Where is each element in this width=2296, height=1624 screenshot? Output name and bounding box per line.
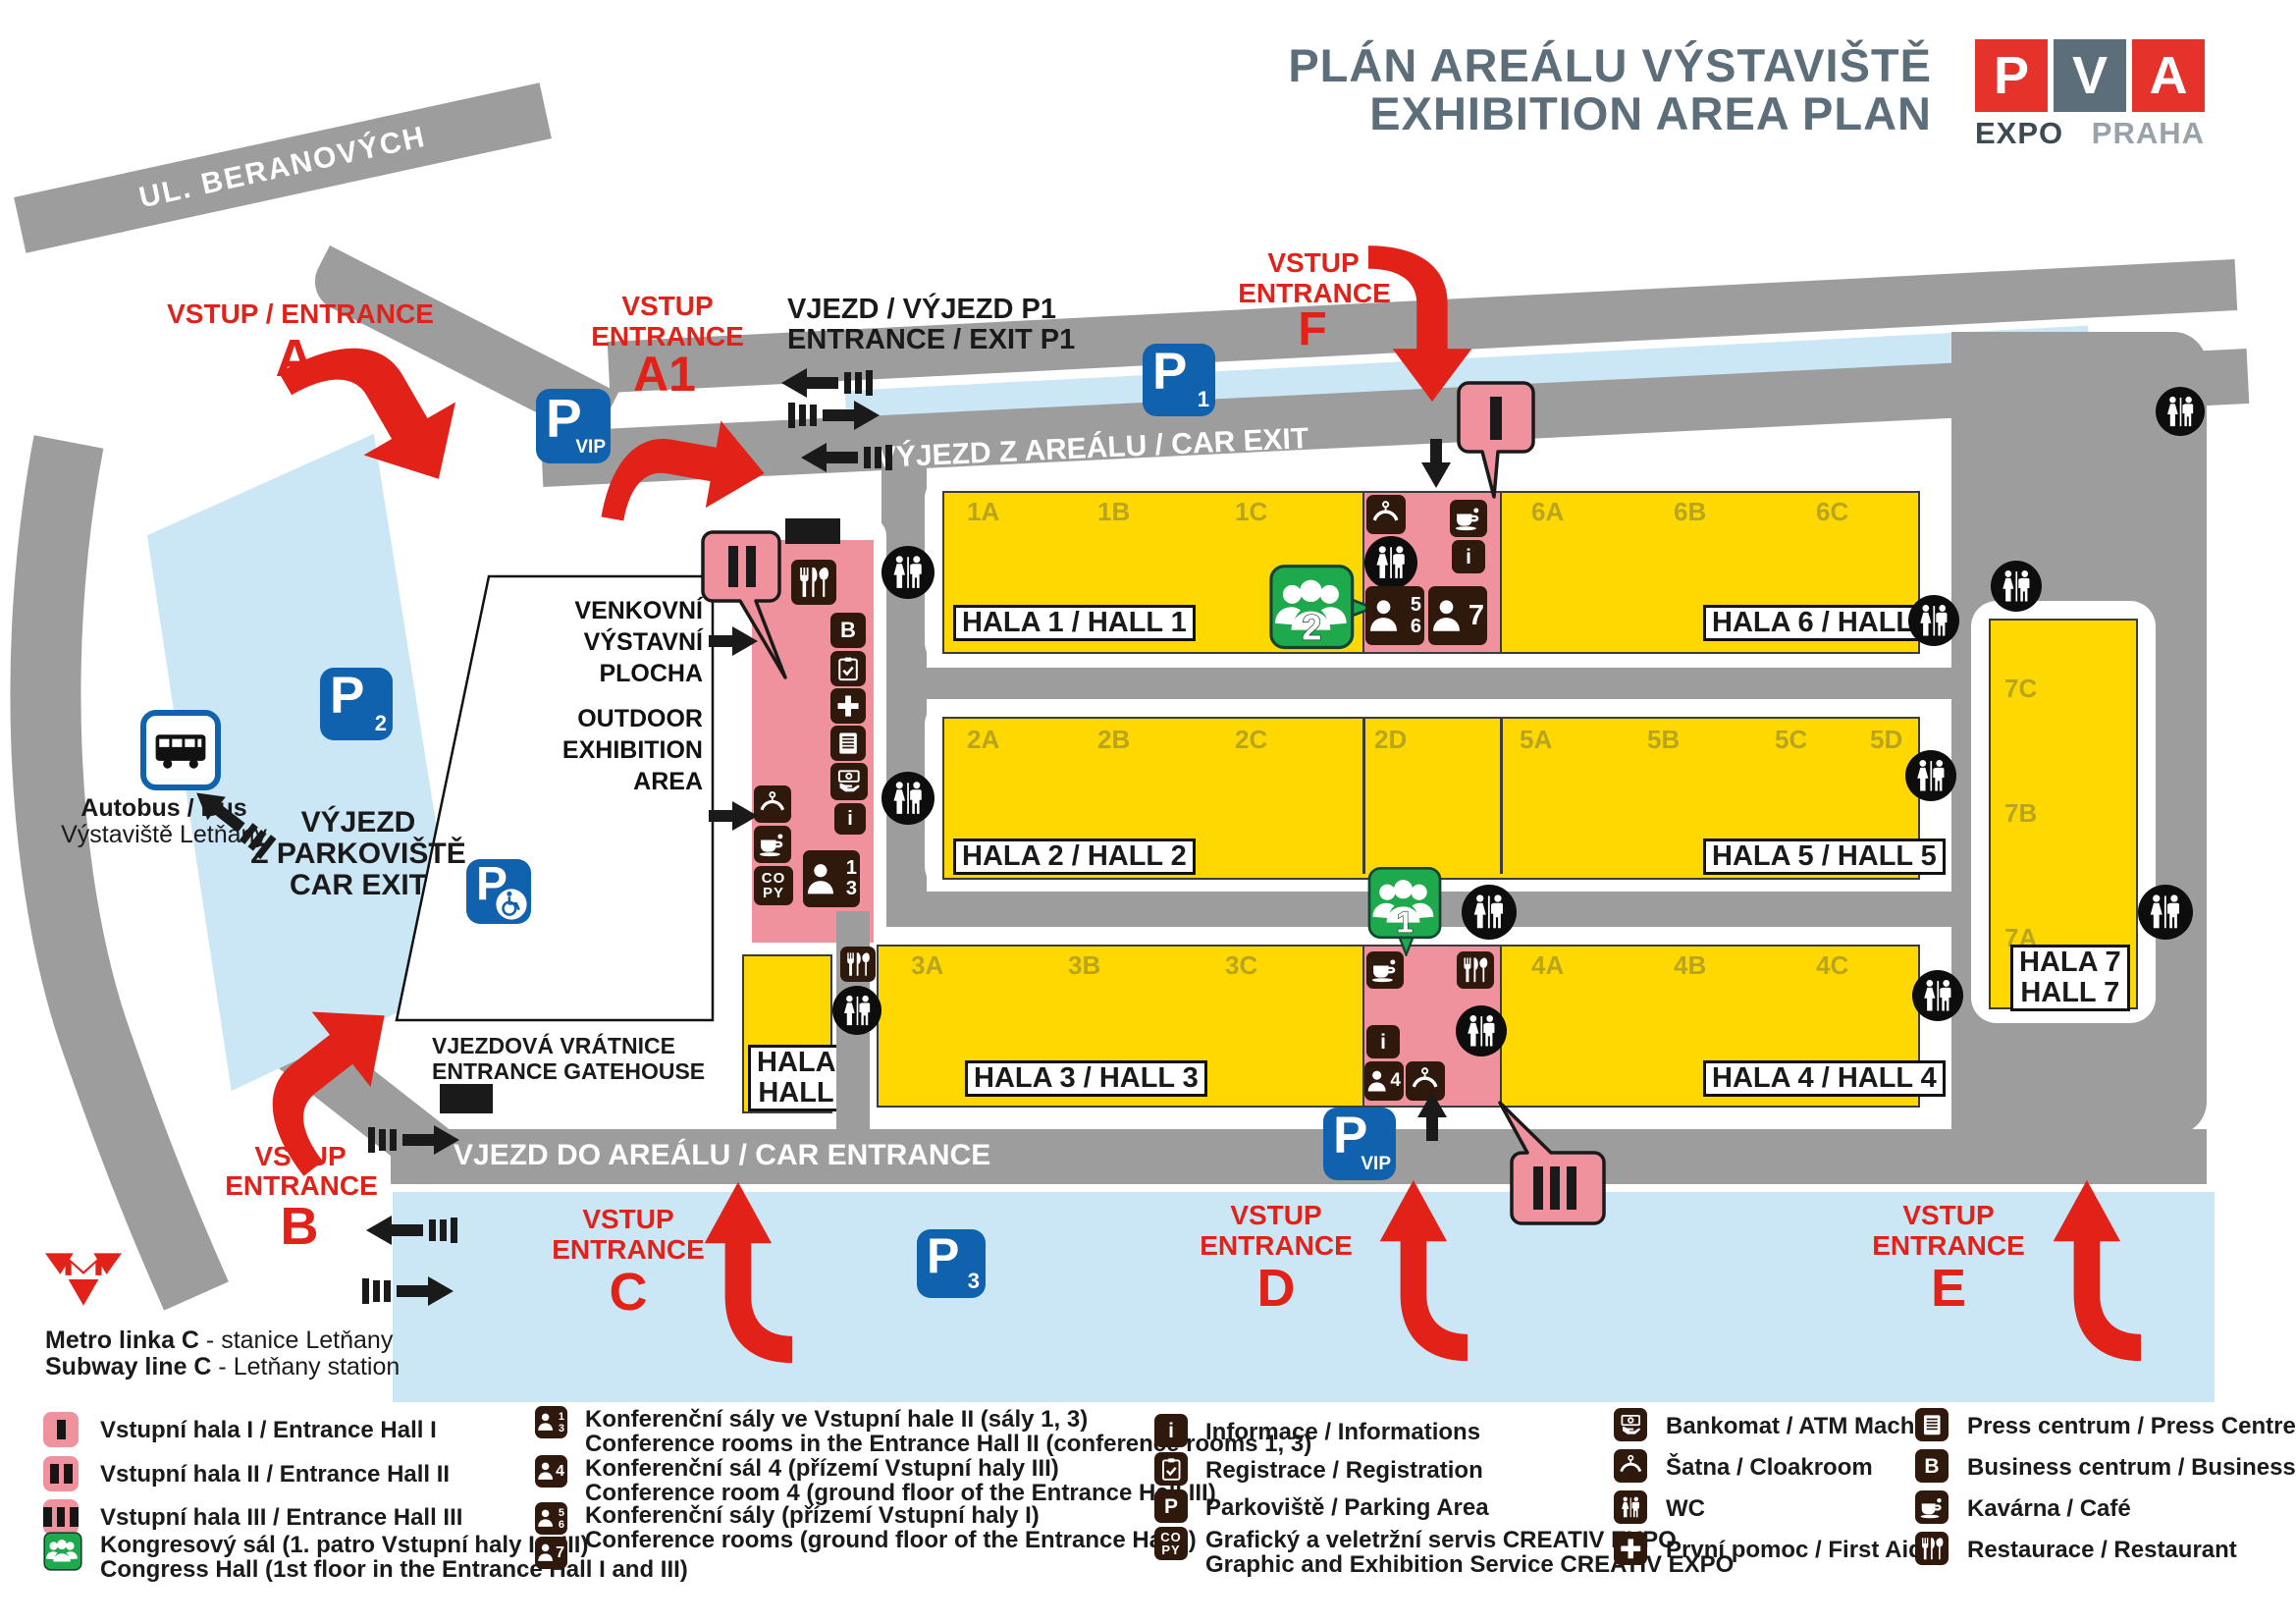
hall-section-label-1a: 1A bbox=[967, 497, 999, 527]
restaurant-icon bbox=[840, 947, 876, 982]
conf-icon: 7 bbox=[1428, 586, 1487, 645]
conf-icon: 4 bbox=[535, 1455, 567, 1488]
hall-7-label: HALA 7HALL 7 bbox=[2010, 945, 2130, 1011]
hall-section-label-1b: 1B bbox=[1097, 497, 1130, 527]
legend-label: Bankomat / ATM Machine bbox=[1666, 1414, 1949, 1438]
bus-icon bbox=[152, 722, 209, 779]
hall-section-label-4a: 4A bbox=[1531, 950, 1564, 981]
hall-section-label-7b: 7B bbox=[2004, 798, 2037, 829]
hall-section-label-4c: 4C bbox=[1816, 950, 1848, 981]
entrance-e-letter: E bbox=[1931, 1258, 1966, 1319]
legend-label: Informace / Informations bbox=[1205, 1420, 1480, 1444]
copy-icon: COPY bbox=[754, 866, 793, 905]
metro-icon bbox=[45, 1247, 122, 1310]
street-beranovych: UL. BERANOVÝCH bbox=[14, 82, 552, 252]
cafe-icon bbox=[1366, 951, 1404, 989]
parking-icon: P bbox=[1154, 1489, 1188, 1523]
direction-arrow-left bbox=[366, 1214, 460, 1247]
legend-label: Registrace / Registration bbox=[1205, 1458, 1483, 1483]
direction-arrow-right bbox=[365, 1123, 459, 1157]
copy-icon: COPY bbox=[1154, 1527, 1188, 1560]
entrance-e-l1: VSTUP bbox=[1902, 1200, 1994, 1231]
p1-gate-label: VJEZD / VÝJEZD P1 ENTRANCE / EXIT P1 bbox=[787, 295, 1075, 355]
firstaid-icon bbox=[830, 688, 866, 724]
entrance-b-letter: B bbox=[281, 1196, 319, 1257]
entrance-f-l1: VSTUP bbox=[1267, 247, 1359, 279]
wc-icon bbox=[881, 772, 934, 825]
hall-section-label-6b: 6B bbox=[1674, 497, 1706, 527]
street-beranovych-label: UL. BERANOVÝCH bbox=[136, 121, 429, 216]
direction-arrow-left bbox=[801, 441, 895, 474]
direction-arrow-right bbox=[359, 1274, 454, 1308]
wc-icon bbox=[1456, 1005, 1507, 1056]
restaurant-icon bbox=[1457, 951, 1494, 989]
info-icon: i bbox=[1366, 1025, 1400, 1058]
entrance-f-arrow bbox=[1368, 242, 1478, 406]
inner-vertical-road-upper bbox=[881, 444, 927, 923]
wc-icon bbox=[1991, 561, 2042, 612]
wc-icon bbox=[1462, 885, 1517, 940]
gatehouse-mark bbox=[440, 1084, 493, 1113]
atm-icon bbox=[1614, 1408, 1647, 1441]
legend-entrance-hall-chip bbox=[43, 1412, 79, 1447]
entrance-c-l1: VSTUP bbox=[582, 1204, 673, 1235]
hall2-5-divider bbox=[1500, 719, 1503, 874]
hall-section-label-2b: 2B bbox=[1097, 725, 1130, 755]
wc-icon bbox=[2138, 885, 2193, 940]
entrance-a1-letter: A1 bbox=[633, 346, 696, 403]
hall-section-label-3a: 3A bbox=[911, 950, 943, 981]
entrance-d-arrow bbox=[1374, 1174, 1468, 1366]
svg-text:1: 1 bbox=[1396, 905, 1413, 939]
legend-label: Kavárna / Café bbox=[1967, 1496, 2131, 1521]
wc-icon bbox=[1908, 595, 1959, 646]
legend-entrance-hall-chip bbox=[43, 1499, 79, 1535]
svg-text:2: 2 bbox=[1302, 607, 1321, 647]
parking-p2-sign: P2 bbox=[320, 668, 393, 740]
entrance-c-arrow bbox=[699, 1176, 792, 1368]
wcsq-icon bbox=[1614, 1490, 1647, 1524]
entrance-e-arrow bbox=[2048, 1174, 2141, 1366]
business-icon: B bbox=[1915, 1449, 1949, 1483]
conf-icon: 13 bbox=[535, 1406, 567, 1438]
atm-icon bbox=[830, 763, 868, 800]
legend-label: Vstupní hala III / Entrance Hall III bbox=[100, 1505, 462, 1530]
logo-letter-v: V bbox=[2054, 39, 2126, 112]
wc-icon bbox=[1912, 970, 1963, 1021]
press-icon bbox=[1915, 1408, 1949, 1441]
cloakroom-icon bbox=[1614, 1449, 1647, 1483]
hall-3-label: HALA 3 / HALL 3 bbox=[965, 1060, 1207, 1097]
business-icon: B bbox=[830, 613, 866, 648]
hall-section-label-5d: 5D bbox=[1870, 725, 1902, 755]
cafe-icon bbox=[1450, 500, 1487, 537]
conf-icon: 7 bbox=[535, 1537, 567, 1569]
hall-2-label: HALA 2 / HALL 2 bbox=[953, 839, 1196, 875]
hall-section-label-3c: 3C bbox=[1225, 950, 1257, 981]
entrance-c-letter: C bbox=[610, 1262, 648, 1323]
congress-hall-1-marker: 1 bbox=[1363, 866, 1446, 956]
hall-section-label-1c: 1C bbox=[1235, 497, 1267, 527]
hall-section-label-5b: 5B bbox=[1647, 725, 1680, 755]
wc-icon bbox=[881, 546, 934, 599]
conf-icon: 56 bbox=[1365, 586, 1424, 645]
legend-label: Konferenční sály ve Vstupní hale II (sál… bbox=[585, 1407, 1311, 1456]
parking-disabled-sign: P bbox=[466, 859, 531, 924]
conf-icon: 56 bbox=[535, 1502, 567, 1535]
legend-label: Business centrum / Business Centre bbox=[1967, 1455, 2296, 1480]
legend-label: Vstupní hala II / Entrance Hall II bbox=[100, 1462, 450, 1487]
info-icon: i bbox=[1452, 540, 1485, 573]
outdoor-area-label: VENKOVNÍVÝSTAVNÍPLOCHA OUTDOOREXHIBITION… bbox=[510, 595, 703, 797]
direction-arrow-right bbox=[709, 799, 758, 833]
restaurant-icon bbox=[791, 560, 836, 605]
gatehouse-label: VJEZDOVÁ VRÁTNICEENTRANCE GATEHOUSE bbox=[432, 1033, 705, 1084]
bus-stop-sign bbox=[140, 710, 221, 790]
inner-road-gap-a bbox=[925, 668, 1955, 699]
metro-label: Metro linka C - stanice Letňany Subway l… bbox=[45, 1327, 400, 1380]
hall-5-label: HALA 5 / HALL 5 bbox=[1703, 839, 1946, 875]
legend-label: Konferenční sál 4 (přízemí Vstupní haly … bbox=[585, 1456, 1216, 1505]
registration-icon bbox=[830, 651, 866, 686]
hall-section-label-2c: 2C bbox=[1235, 725, 1267, 755]
legend-label: Grafický a veletržní servis CREATIV EXPO… bbox=[1205, 1528, 1734, 1577]
legend-label: Vstupní hala I / Entrance Hall I bbox=[100, 1418, 437, 1442]
hall-section-label-7c: 7C bbox=[2004, 674, 2037, 704]
direction-arrow-right bbox=[785, 399, 880, 432]
congress-hall-icon bbox=[43, 1532, 82, 1571]
cloakroom-icon bbox=[1366, 495, 1406, 534]
conf-icon: 4 bbox=[1364, 1061, 1404, 1101]
parking-vip-top-sign: PVIP bbox=[536, 389, 611, 463]
legend-label: WC bbox=[1666, 1496, 1705, 1521]
legend-label: Press centrum / Press Centre bbox=[1967, 1414, 2296, 1438]
hall-section-label-2a: 2A bbox=[967, 725, 999, 755]
firstaid-icon bbox=[1614, 1532, 1647, 1565]
hall-section-label-4b: 4B bbox=[1674, 950, 1706, 981]
parking-vip-bottom-sign: PVIP bbox=[1323, 1108, 1396, 1180]
cafe-icon bbox=[1915, 1490, 1949, 1524]
info-icon: i bbox=[834, 803, 866, 835]
direction-arrow-right bbox=[709, 624, 758, 658]
logo-letter-p: P bbox=[1975, 39, 2048, 112]
legend-label: První pomoc / First Aid bbox=[1666, 1538, 1923, 1562]
congress-hall-2-marker: 2 bbox=[1268, 564, 1378, 652]
direction-arrow-up bbox=[1415, 1092, 1449, 1141]
logo-subtitle: EXPOPRAHA bbox=[1975, 116, 2205, 151]
car-entrance-road-label: VJEZD DO AREÁLU / CAR ENTRANCE bbox=[454, 1139, 990, 1172]
logo-letter-a: A bbox=[2132, 39, 2205, 112]
entrance-d-l1: VSTUP bbox=[1230, 1200, 1321, 1231]
conf-icon: 13 bbox=[803, 850, 860, 907]
hall-section-label-5a: 5A bbox=[1520, 725, 1552, 755]
press-icon bbox=[830, 726, 866, 761]
restaurant-icon bbox=[1915, 1532, 1949, 1565]
legend-entrance-hall-chip bbox=[43, 1456, 79, 1491]
hall-section-label-3b: 3B bbox=[1068, 950, 1100, 981]
registration-icon bbox=[1154, 1452, 1188, 1486]
entrance-a1-arrow bbox=[597, 396, 777, 545]
legend-label: Konferenční sály (přízemí Vstupní haly I… bbox=[585, 1503, 1197, 1552]
cafe-icon bbox=[754, 826, 791, 863]
parking-p3-sign: P3 bbox=[917, 1229, 986, 1298]
hall-1-label: HALA 1 / HALL 1 bbox=[953, 605, 1196, 641]
entrance-a1-l1: VSTUP bbox=[621, 291, 713, 322]
hall-4-label: HALA 4 / HALL 4 bbox=[1703, 1060, 1946, 1097]
parking-p1-sign: P1 bbox=[1143, 344, 1215, 416]
hall2-2d-divider bbox=[1362, 719, 1365, 874]
hall-section-label-6a: 6A bbox=[1531, 497, 1564, 527]
hall-section-label-2d: 2D bbox=[1374, 725, 1407, 755]
entrance-hall-3-callout bbox=[1488, 1090, 1612, 1239]
legend-label: Restaurace / Restaurant bbox=[1967, 1538, 2237, 1562]
page-title: PLÁN AREÁLU VÝSTAVIŠTĚ EXHIBITION AREA P… bbox=[1129, 41, 1932, 137]
legend-label: Šatna / Cloakroom bbox=[1666, 1455, 1873, 1480]
legend-label: Parkoviště / Parking Area bbox=[1205, 1495, 1489, 1520]
info-icon: i bbox=[1154, 1414, 1188, 1447]
entrance-d-letter: D bbox=[1257, 1258, 1296, 1319]
wc-icon bbox=[1905, 750, 1956, 801]
wheelchair-icon bbox=[495, 888, 528, 921]
cloakroom-icon bbox=[754, 785, 791, 823]
hall-section-label-6c: 6C bbox=[1816, 497, 1848, 527]
direction-arrow-left bbox=[781, 366, 876, 400]
direction-arrow-down bbox=[1419, 439, 1453, 488]
hall-section-label-5c: 5C bbox=[1775, 725, 1807, 755]
wc-icon bbox=[1364, 536, 1417, 589]
wc-icon bbox=[832, 986, 881, 1035]
entrance-f-letter: F bbox=[1298, 302, 1326, 356]
wc-icon bbox=[2156, 387, 2205, 436]
exhibition-area-map: UL. BERANOVÝCH UL. TUPOLEVOVA bbox=[0, 0, 2296, 1624]
